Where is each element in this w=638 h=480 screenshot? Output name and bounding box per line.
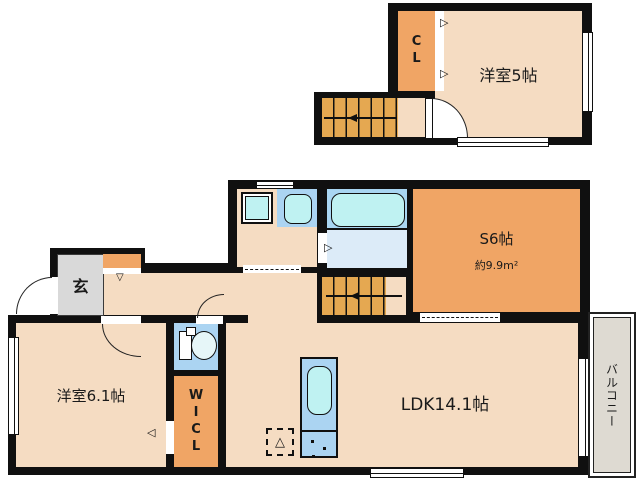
room-wicl-label: WICL	[189, 388, 204, 456]
room-wicl: WICL	[174, 376, 218, 467]
closet-cl-label: CL	[409, 34, 424, 68]
stove-burner-dot	[311, 440, 314, 443]
window-bedroom-2f-right	[582, 32, 593, 112]
door-marker-cl-bottom-icon: ▷	[440, 68, 448, 79]
refrigerator-triangle: △	[275, 435, 285, 450]
window-ldk-bottom	[370, 468, 464, 478]
window-bedroom-2f-bottom	[457, 137, 549, 147]
bathtub-icon	[331, 193, 405, 227]
door-washroom-sliding	[243, 265, 301, 273]
balcony: バルコニー	[588, 312, 636, 478]
entrance-closet	[103, 254, 141, 268]
window-service-bottom	[420, 313, 500, 322]
washing-machine-icon	[241, 192, 273, 224]
room-bathroom-floor	[327, 230, 407, 268]
door-leaf-bedroom-2f	[425, 98, 433, 139]
vanity-sink-icon	[284, 194, 312, 224]
stove-burner-dot	[323, 447, 326, 450]
window-bedroom-1f-left	[8, 337, 19, 435]
room-service: S6帖 約9.9m²	[413, 189, 580, 312]
toilet-bowl-icon	[191, 331, 217, 360]
room-entrance-label: 玄	[72, 273, 88, 297]
room-service-label: S6帖	[479, 228, 513, 249]
door-wicl-gap	[166, 421, 174, 454]
balcony-label: バルコニー	[604, 363, 621, 428]
closet-cl: CL	[398, 11, 435, 91]
room-bedroom-1f-label: 洋室6.1帖	[57, 385, 126, 406]
stove-icon	[302, 430, 336, 432]
door-marker-bathroom-icon: ▷	[324, 242, 332, 253]
door-marker-wicl-icon: ◁	[147, 427, 155, 438]
stairs-1f-arrow-head	[350, 292, 359, 300]
door-marker-entrance-closet-icon: ▽	[116, 273, 124, 283]
room-bedroom-1f: 洋室6.1帖	[16, 323, 166, 467]
refrigerator-icon: △	[266, 428, 294, 456]
stairs-1f-arrow	[326, 295, 402, 297]
stairs-2f-arrow-head	[348, 114, 357, 122]
window-washroom-top	[256, 181, 294, 189]
stove-burner-dot	[312, 455, 315, 458]
room-ldk-label: LDK14.1帖	[360, 390, 530, 415]
balcony-floor: バルコニー	[593, 317, 631, 473]
room-bedroom-2f-label: 洋室5帖	[479, 62, 537, 86]
floorplan-canvas: 洋室5帖 CL ▷ ▷ ▷ S6帖 約9.9m² 玄 ▽ 洋室	[0, 0, 638, 480]
washing-machine-drum	[245, 196, 269, 220]
room-service-area: 約9.9m²	[475, 257, 519, 273]
kitchen-sink-icon	[307, 366, 332, 415]
door-arc-entrance	[16, 277, 52, 314]
door-marker-cl-top-icon: ▷	[440, 17, 448, 28]
door-bedroom-1f-gap	[101, 316, 141, 324]
stairs-2f-arrow	[324, 117, 396, 119]
room-entrance: 玄	[57, 254, 104, 316]
